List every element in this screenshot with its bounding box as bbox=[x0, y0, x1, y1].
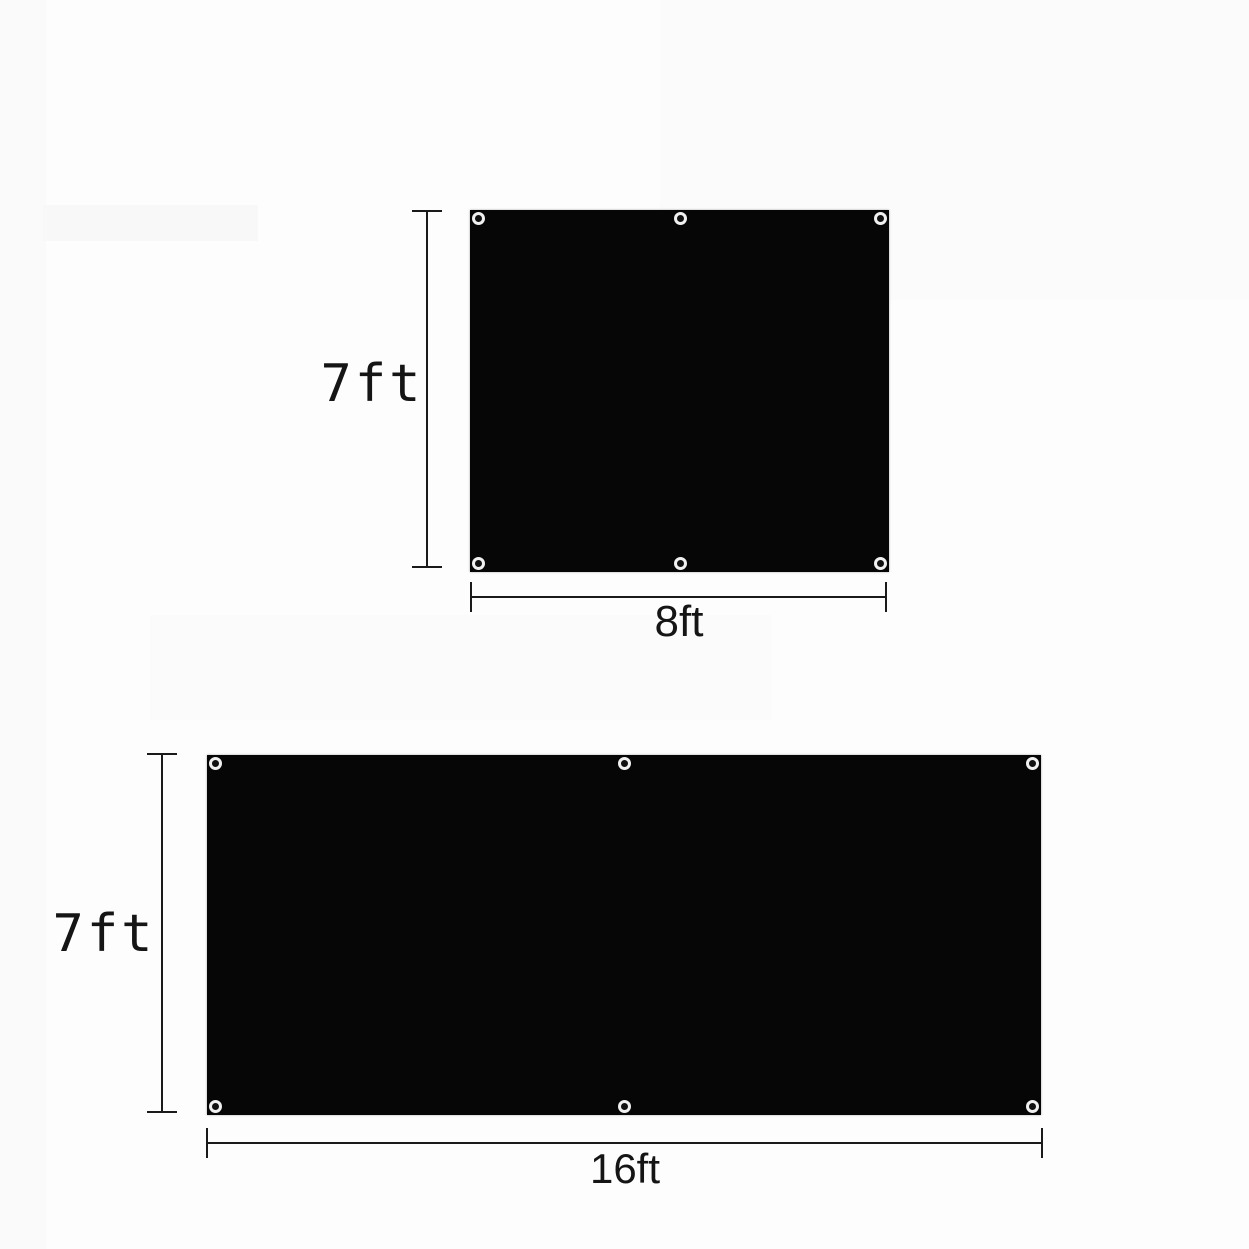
grommet-icon bbox=[874, 557, 887, 570]
dimension-tick bbox=[147, 1111, 177, 1113]
grommet-icon bbox=[1026, 1100, 1039, 1113]
dimension-tick bbox=[885, 582, 887, 612]
dimension-tick bbox=[1041, 1128, 1043, 1158]
width-label: 16ft bbox=[545, 1148, 705, 1190]
grommet-icon bbox=[618, 757, 631, 770]
grommet-icon bbox=[209, 1100, 222, 1113]
background-patch bbox=[0, 0, 46, 1249]
grommet-icon bbox=[674, 212, 687, 225]
dimension-tick bbox=[412, 566, 442, 568]
dimension-tick bbox=[412, 210, 442, 212]
background-patch bbox=[43, 205, 258, 241]
grommet-icon bbox=[472, 557, 485, 570]
width-label: 8ft bbox=[609, 600, 749, 644]
grommet-icon bbox=[874, 212, 887, 225]
height-label: 7ft bbox=[44, 908, 164, 960]
grommet-icon bbox=[1026, 757, 1039, 770]
width-dimension-line bbox=[207, 1142, 1043, 1144]
product-dimension-diagram: 7ft 8ft 7ft 16ft bbox=[0, 0, 1249, 1249]
grommet-icon bbox=[209, 757, 222, 770]
panel-7x16 bbox=[207, 755, 1041, 1115]
panel-7x8 bbox=[470, 210, 889, 572]
dimension-tick bbox=[147, 753, 177, 755]
height-label: 7ft bbox=[312, 358, 432, 410]
dimension-tick bbox=[470, 582, 472, 612]
grommet-icon bbox=[472, 212, 485, 225]
grommet-icon bbox=[618, 1100, 631, 1113]
grommet-icon bbox=[674, 557, 687, 570]
dimension-tick bbox=[206, 1128, 208, 1158]
